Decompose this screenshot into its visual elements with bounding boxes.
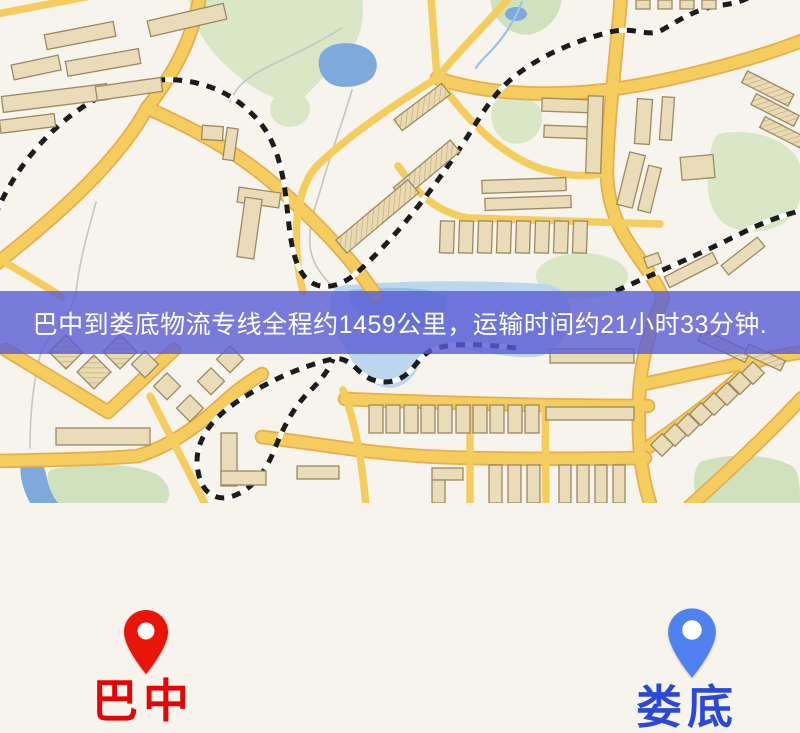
route-info-banner: 巴中到娄底物流专线全程约1459公里，运输时间约21小时33分钟.	[0, 291, 800, 354]
blue-pin-icon[interactable]	[666, 606, 718, 680]
marker-label-loudi: 娄底	[636, 684, 738, 730]
basemap	[0, 0, 800, 503]
red-pin-icon[interactable]	[122, 608, 170, 676]
marker-label-bazhong: 巴中	[92, 678, 194, 724]
pin-hole	[138, 623, 155, 640]
map-canvas: 巴中 娄底 巴中到娄底物流专线全程约1459公里，运输时间约21小时33分钟.	[0, 0, 800, 503]
pin-hole	[682, 620, 702, 640]
route-info-text: 巴中到娄底物流专线全程约1459公里，运输时间约21小时33分钟.	[33, 305, 768, 341]
